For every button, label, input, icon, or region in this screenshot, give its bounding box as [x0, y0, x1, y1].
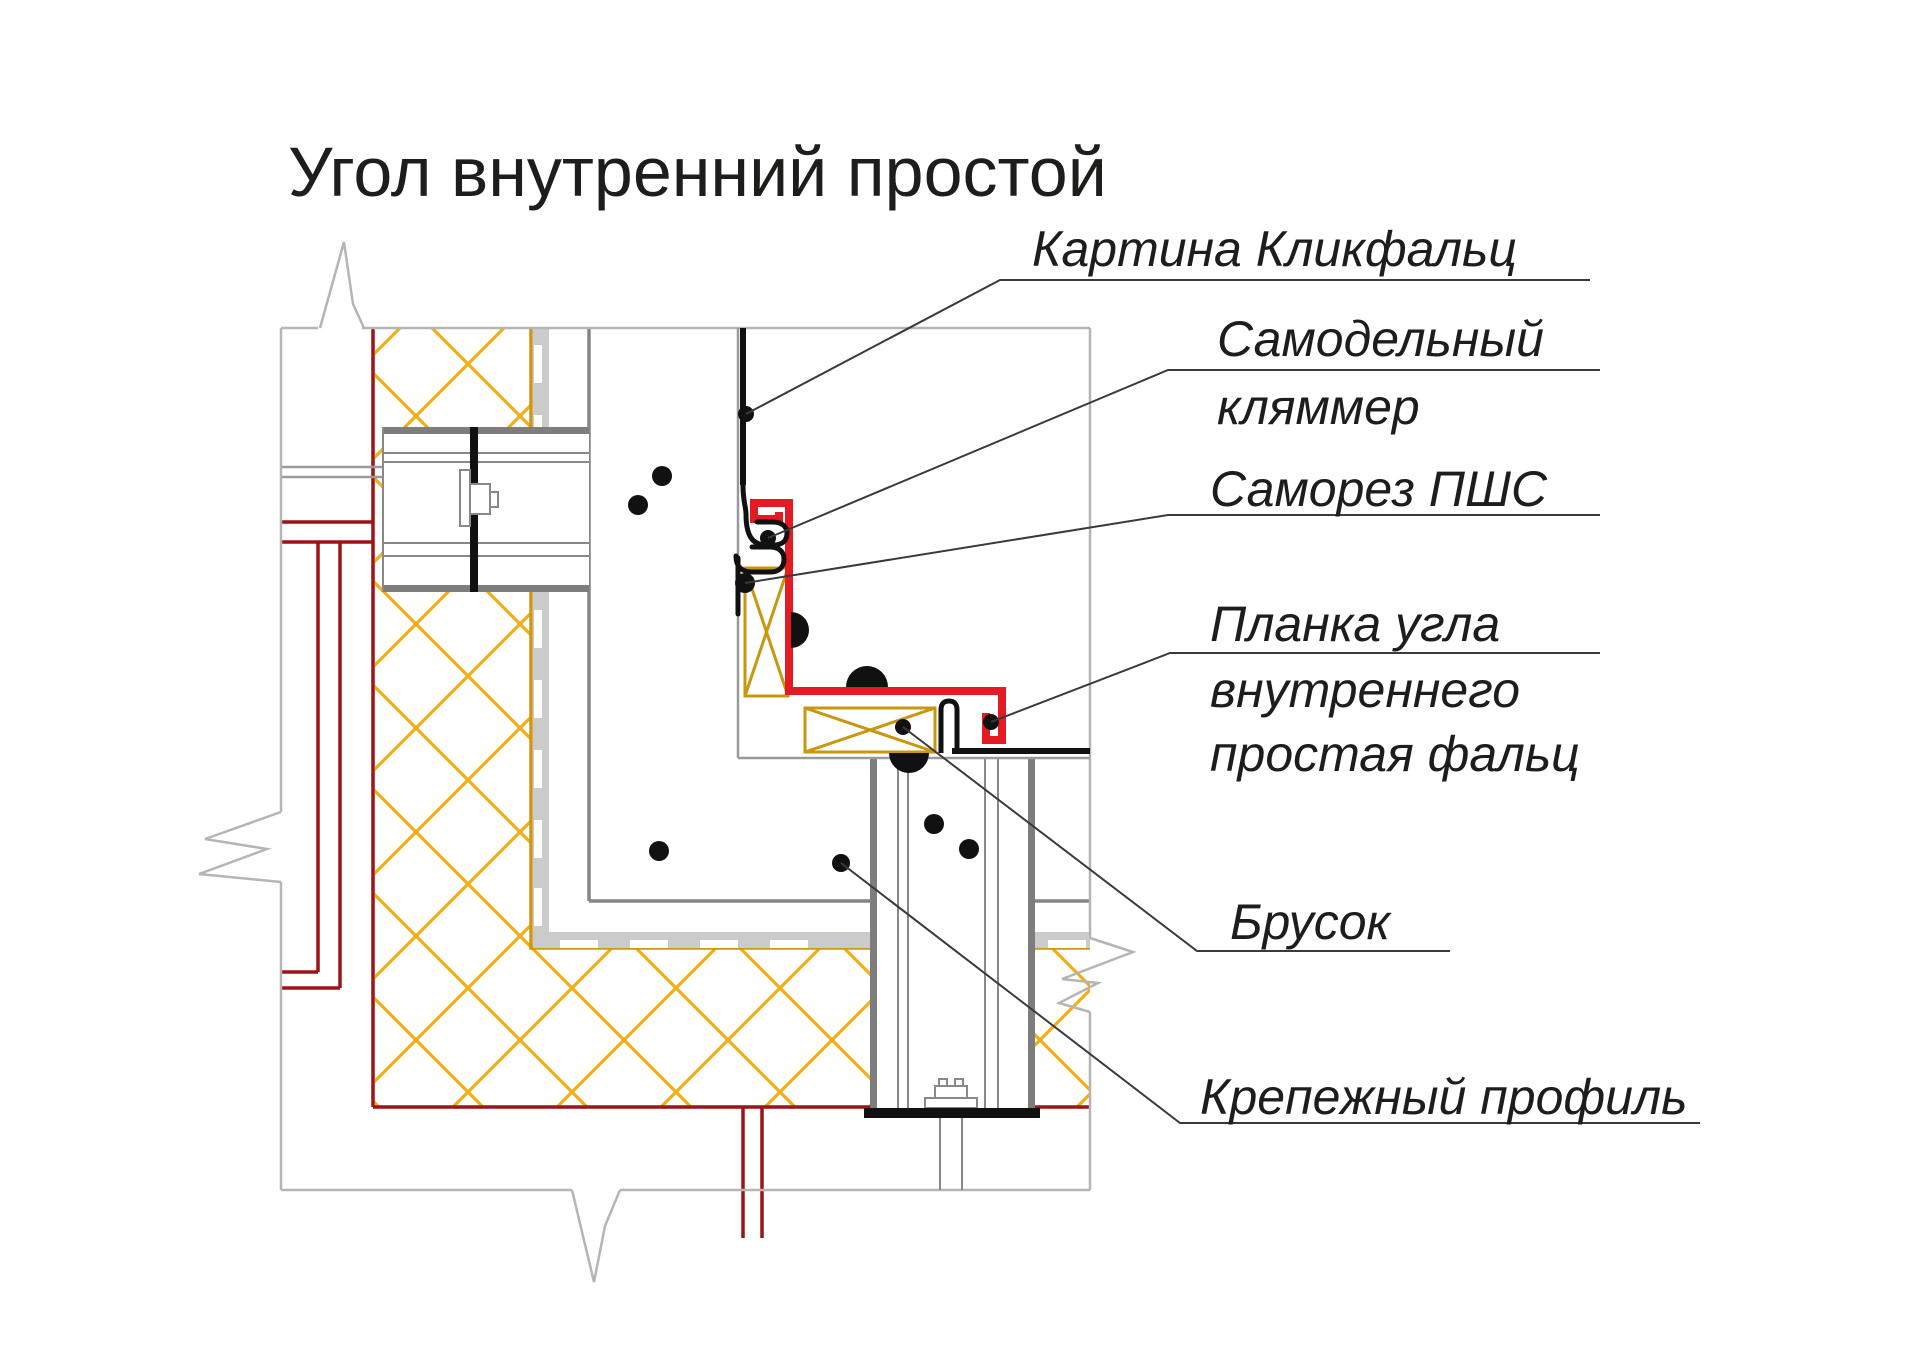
dot-wall-2: [628, 495, 648, 515]
page-title: Угол внутренний простой: [288, 133, 1107, 211]
callout-profil: Крепежный профиль: [1200, 1069, 1687, 1125]
callout-samorez: Саморез ПШС: [1210, 461, 1548, 517]
callout-klyammer-line2: кляммер: [1217, 379, 1420, 435]
mounting-bracket-top: [383, 427, 589, 592]
profile-anchor-stem: [940, 1118, 962, 1190]
callout-kartina: Картина Кликфальц: [1032, 221, 1517, 277]
callout-planka-line3: простая фальц: [1210, 726, 1580, 782]
callout-planka-line1: Планка угла: [1210, 596, 1500, 652]
dot-wall-5: [959, 839, 979, 859]
clickfalz-panel-horizontal: [941, 701, 1090, 753]
break-symbol-bottom: [572, 1190, 620, 1282]
profile-base-plate: [864, 1108, 1040, 1118]
callouts: Картина Кликфальц Самодельный кляммер Са…: [1032, 221, 1687, 1125]
callout-brusok: Брусок: [1230, 894, 1392, 950]
mounting-profile-bottom: [864, 758, 1040, 1190]
leader-samorez: [745, 515, 1600, 583]
break-symbol-top: [320, 242, 364, 328]
callout-planka-line2: внутреннего: [1210, 662, 1520, 718]
wood-bar-horizontal: [805, 708, 935, 752]
dot-wall-4: [924, 814, 944, 834]
screw-dome-right: [791, 612, 809, 648]
screw-dome-up: [846, 666, 888, 687]
dot-wall-3: [649, 841, 669, 861]
profile-body: [870, 758, 1035, 1117]
panel-edge-fold-2: [941, 701, 957, 753]
dot-wall-1: [652, 466, 672, 486]
callout-klyammer-line1: Самодельный: [1217, 311, 1544, 367]
page: Угол внутренний простой: [0, 0, 1920, 1348]
diagram-canvas: Угол внутренний простой: [0, 0, 1920, 1348]
break-symbol-left: [199, 812, 281, 882]
